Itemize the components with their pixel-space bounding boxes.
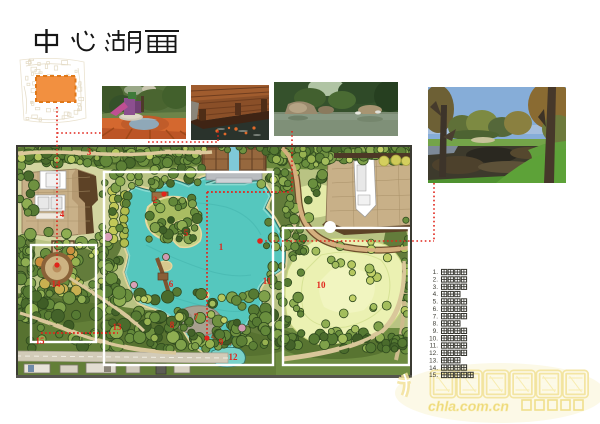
svg-text:10.: 10. [429,335,438,342]
svg-text:14.: 14. [429,365,438,372]
svg-text:12.: 12. [429,350,438,357]
svg-text:3.: 3. [433,284,439,291]
svg-text:9.: 9. [433,328,439,335]
svg-text:6.: 6. [433,306,439,313]
svg-text:5.: 5. [433,299,439,306]
svg-text:chla.com.cn: chla.com.cn [428,398,509,414]
svg-text:4.: 4. [433,291,439,298]
svg-text:7.: 7. [433,313,439,320]
svg-text:11.: 11. [430,343,439,350]
svg-text:8.: 8. [433,321,439,328]
svg-text:2.: 2. [433,277,439,284]
svg-text:15.: 15. [429,372,438,379]
svg-text:1.: 1. [433,269,439,276]
svg-text:13.: 13. [429,357,438,364]
